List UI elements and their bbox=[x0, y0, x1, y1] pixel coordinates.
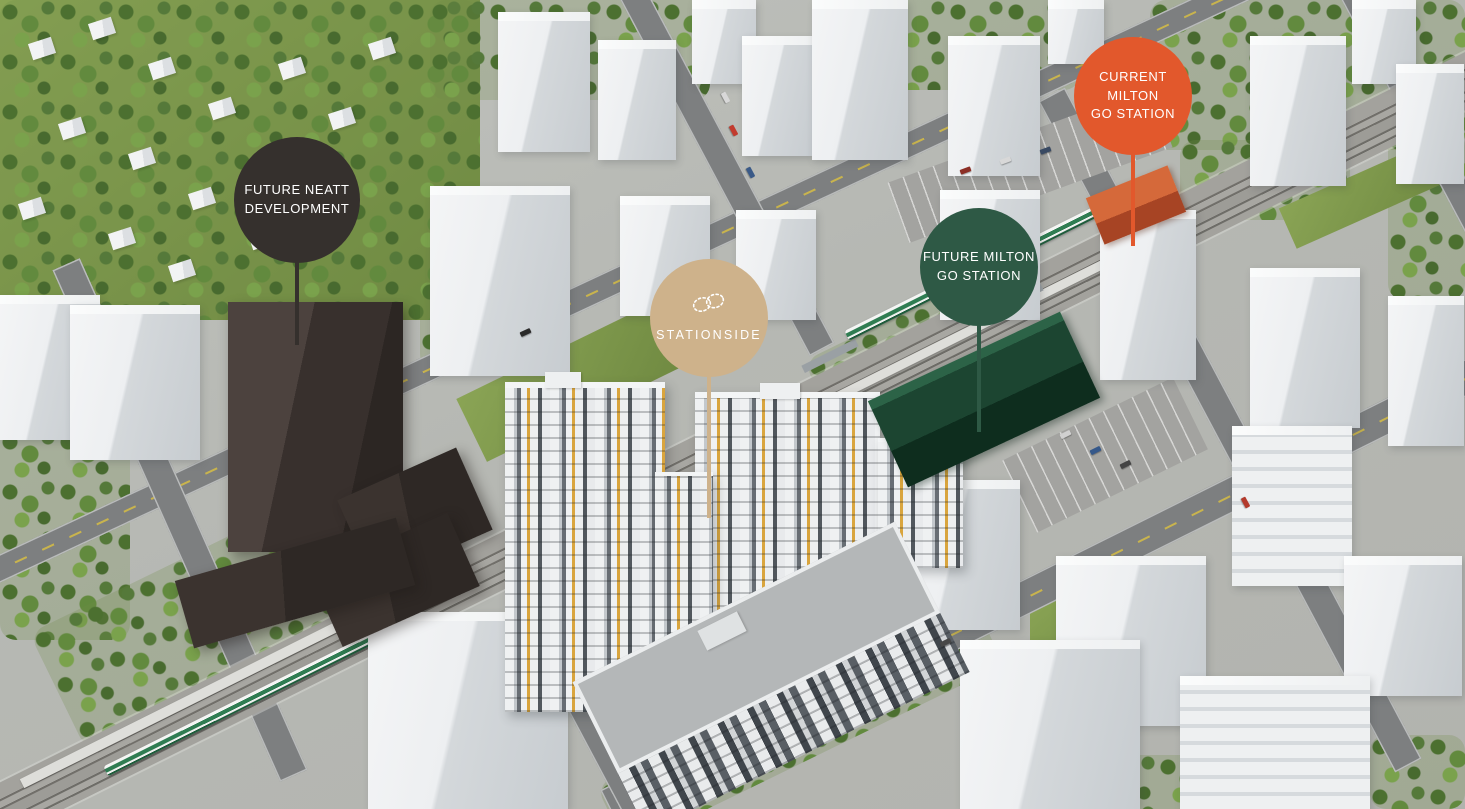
marker-label-line1: FUTURE MILTON bbox=[923, 248, 1035, 267]
tower-roof-box bbox=[545, 372, 581, 388]
marker-label: CURRENT MILTON GO STATION bbox=[1074, 68, 1192, 125]
marker-future-neatt-development: FUTURE NEATT DEVELOPMENT bbox=[234, 137, 360, 263]
car bbox=[729, 124, 739, 136]
marker-label: STATIONSIDE bbox=[656, 326, 762, 344]
marker-label-line1: FUTURE NEATT bbox=[244, 181, 349, 200]
marker-current-milton-go-station: CURRENT MILTON GO STATION bbox=[1074, 37, 1192, 155]
building-block bbox=[1344, 556, 1462, 696]
marker-future-milton-go-station: FUTURE MILTON GO STATION bbox=[920, 208, 1038, 326]
building-block bbox=[1396, 64, 1464, 184]
building-block bbox=[430, 186, 570, 376]
marker-stationside: STATIONSIDE bbox=[650, 259, 768, 377]
marker-label-line2: GO STATION bbox=[1074, 105, 1192, 124]
building-block bbox=[498, 12, 590, 152]
marker-bubble-future-neatt-development[interactable]: FUTURE NEATT DEVELOPMENT bbox=[234, 137, 360, 263]
building-block bbox=[960, 640, 1140, 809]
marker-bubble-stationside[interactable]: STATIONSIDE bbox=[650, 259, 768, 377]
building-block bbox=[812, 0, 908, 160]
marker-label: FUTURE NEATT DEVELOPMENT bbox=[244, 181, 349, 219]
marker-bubble-future-milton-go-station[interactable]: FUTURE MILTON GO STATION bbox=[920, 208, 1038, 326]
tower-roof-box bbox=[760, 383, 800, 399]
building-block bbox=[1250, 36, 1346, 186]
infinity-logo-icon bbox=[689, 292, 729, 319]
marker-label-line2: DEVELOPMENT bbox=[244, 200, 349, 219]
aerial-site-map: FUTURE NEATT DEVELOPMENT STATIONSIDE FUT bbox=[0, 0, 1465, 809]
building-block bbox=[948, 36, 1040, 176]
car bbox=[721, 91, 731, 103]
building-block bbox=[742, 36, 812, 156]
building-block bbox=[1388, 296, 1464, 446]
building-block bbox=[1180, 676, 1370, 809]
building-block bbox=[70, 305, 200, 460]
marker-label: FUTURE MILTON GO STATION bbox=[923, 248, 1035, 286]
building-block bbox=[598, 40, 676, 160]
car bbox=[746, 166, 756, 178]
marker-bubble-current-milton-go-station[interactable]: CURRENT MILTON GO STATION bbox=[1074, 37, 1192, 155]
building-block bbox=[1250, 268, 1360, 428]
marker-label-line1: CURRENT MILTON bbox=[1074, 68, 1192, 106]
marker-label-line2: GO STATION bbox=[923, 267, 1035, 286]
